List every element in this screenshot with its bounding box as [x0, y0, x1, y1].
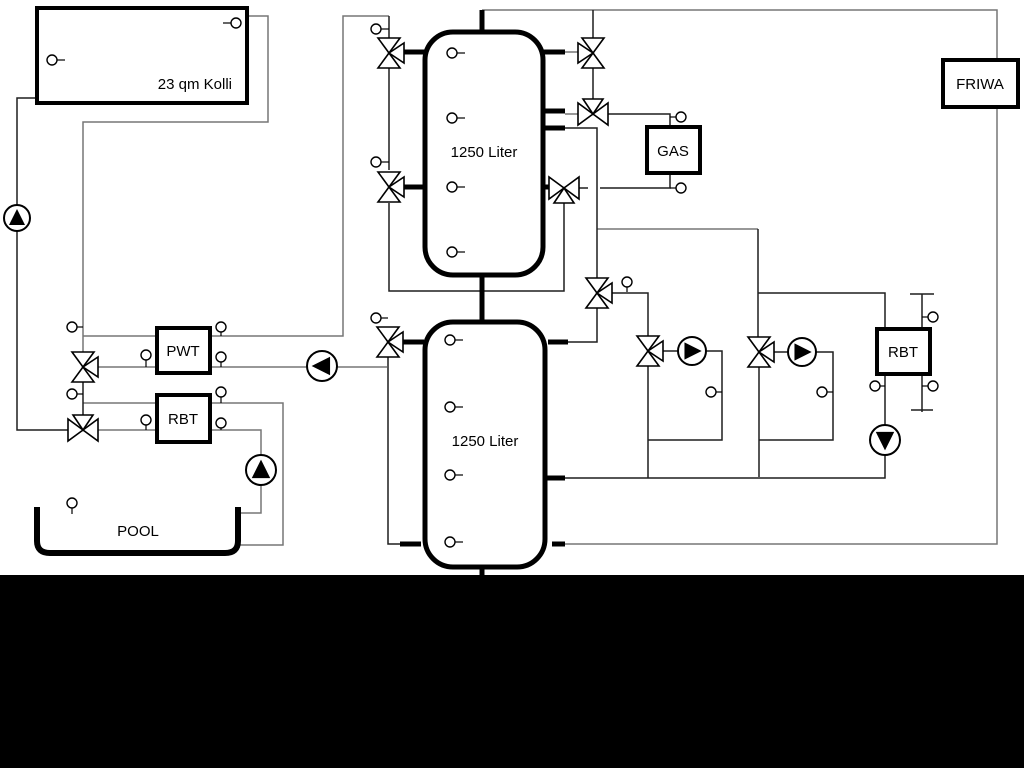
rbt-left-label: RBT — [168, 411, 198, 428]
tank2-label: 1250 Liter — [452, 433, 519, 450]
pump-pwt — [307, 351, 337, 381]
pump-heating-circuit-1 — [678, 337, 706, 365]
pump-heating-circuit-2 — [788, 338, 816, 366]
schematic-page: 23 qm Kolli 1250 Liter 1250 Liter PWT RB… — [0, 0, 1024, 768]
friwa-label: FRIWA — [956, 76, 1004, 93]
footer-black-bar — [0, 575, 1024, 768]
pump-solar — [4, 205, 30, 231]
rbt-right-label: RBT — [888, 344, 918, 361]
schematic-canvas: 23 qm Kolli 1250 Liter 1250 Liter PWT RB… — [0, 0, 1024, 768]
pwt-label: PWT — [166, 343, 199, 360]
tank1-label: 1250 Liter — [451, 144, 518, 161]
collector-label: 23 qm Kolli — [158, 76, 232, 93]
pool-label: POOL — [117, 523, 159, 540]
gas-label: GAS — [657, 143, 689, 160]
pump-rbt-right — [870, 425, 900, 455]
pump-pool — [246, 455, 276, 485]
